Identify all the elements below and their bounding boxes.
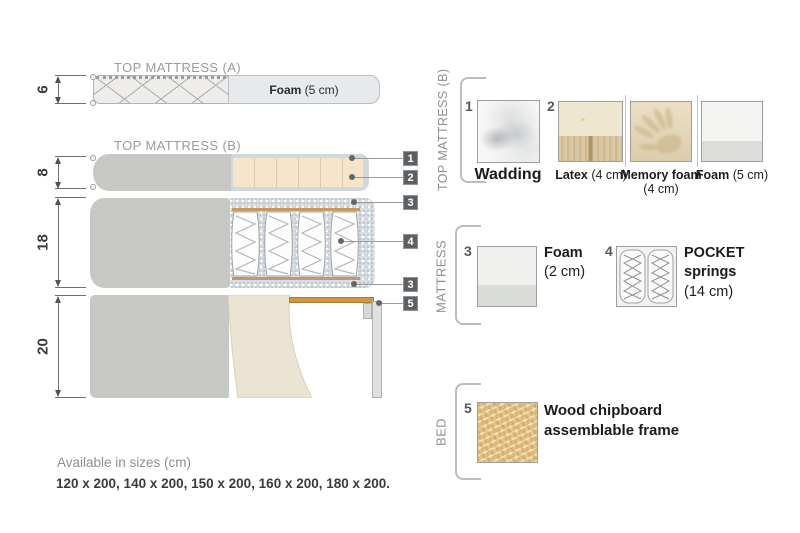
dim-18-value: 18	[35, 230, 52, 256]
legend-mattress-title: MATTRESS	[431, 227, 451, 326]
bed-wood-slat	[289, 297, 374, 303]
top-mattress-b-title: TOP MATTRESS (B)	[114, 138, 241, 153]
callout-5-dot	[376, 300, 382, 306]
callout-3b-dot	[351, 281, 357, 287]
pocket-springs-image	[616, 246, 677, 307]
foam-5cm-image	[701, 101, 763, 162]
foam-a-size: (5 cm)	[301, 83, 338, 97]
callout-2-line	[352, 177, 404, 178]
legend-item-4-number: 4	[605, 243, 613, 259]
fabric-drape-graphic	[228, 295, 312, 398]
wadding-caption: Wadding	[462, 166, 554, 184]
latex-image	[558, 101, 623, 162]
pocket-springs-legend-graphic	[617, 247, 676, 306]
legend-item-3-number: 3	[464, 243, 472, 259]
pocket-springs-caption: POCKET springs(14 cm)	[684, 244, 758, 302]
legend-bed-title: BED	[431, 385, 451, 479]
wadding-image	[477, 100, 540, 163]
available-sizes-list: 120 x 200, 140 x 200, 150 x 200, 160 x 2…	[56, 476, 390, 491]
top-mattress-a-quilted-cover	[93, 75, 228, 104]
legend-item-2-number: 2	[547, 98, 555, 114]
memory-foam-image	[630, 101, 692, 162]
callout-3-dot	[351, 199, 357, 205]
top-mattress-a-title: TOP MATTRESS (A)	[114, 60, 241, 75]
button-tuft-icon	[90, 184, 96, 190]
callout-4-badge: 4	[403, 234, 418, 249]
dim-8-arrow-down	[55, 182, 61, 189]
dim-18-tick-bottom	[55, 287, 86, 288]
bed-frame-leg	[372, 301, 382, 398]
callout-4-dot	[338, 238, 344, 244]
bed-frame-bracket	[363, 303, 372, 319]
dim-18-arrow-up	[55, 198, 61, 205]
bed-upholstered-base	[90, 295, 229, 398]
mattress-fabric-cover	[90, 198, 230, 288]
legend-item-1-number: 1	[465, 98, 473, 114]
callout-1-line	[352, 158, 404, 159]
dim-20-arrow-up	[55, 296, 61, 303]
foam-a-label: Foam	[269, 83, 301, 97]
legend-divider	[697, 95, 698, 167]
legend-top-mattress-b-title: TOP MATTRESS (B)	[433, 72, 453, 188]
dim-20-value: 20	[35, 334, 52, 360]
legend-divider	[625, 95, 626, 167]
callout-5-line	[379, 303, 404, 304]
top-mattress-a-foam-layer: Foam (5 cm)	[228, 75, 380, 104]
top-mattress-b-latex-segments	[233, 158, 363, 187]
dim-20-line	[58, 298, 59, 394]
dim-18-line	[58, 200, 59, 284]
callout-5-badge: 5	[403, 296, 418, 311]
foam-2cm-image	[477, 246, 537, 307]
button-tuft-icon	[90, 100, 96, 106]
callout-1-dot	[349, 155, 355, 161]
chipboard-caption: Wood chipboard assemblable frame	[544, 401, 716, 441]
dim-20-tick-bottom	[55, 397, 86, 398]
dim-6-arrow-up	[55, 76, 61, 83]
hand-imprint-graphic	[631, 102, 691, 161]
callout-3b-badge: 3	[403, 277, 418, 292]
foam-5cm-caption: Foam (5 cm)	[690, 168, 774, 182]
callout-1-badge: 1	[403, 151, 418, 166]
button-tuft-icon	[90, 74, 96, 80]
callout-3b-line	[354, 284, 404, 285]
legend-item-5-number: 5	[464, 400, 472, 416]
available-sizes-title: Available in sizes (cm)	[57, 455, 191, 470]
dim-18-arrow-down	[55, 280, 61, 287]
dim-8-value: 8	[35, 160, 52, 186]
top-mattress-b-wadding-layer	[231, 154, 369, 191]
chipboard-image	[477, 402, 538, 463]
callout-2-badge: 2	[403, 170, 418, 185]
dim-20-arrow-down	[55, 390, 61, 397]
button-tuft-icon	[90, 155, 96, 161]
pocket-springs-graphic	[231, 211, 359, 277]
mattress-foam-edge-bottom	[232, 277, 360, 280]
callout-3-badge: 3	[403, 195, 418, 210]
callout-3-line	[354, 202, 404, 203]
dim-6-arrow-down	[55, 97, 61, 104]
callout-2-dot	[349, 174, 355, 180]
top-mattress-b-fabric-cover	[93, 154, 233, 191]
dim-6-value: 6	[35, 77, 52, 103]
bed-construction-infographic: 6 8 18 20 TOP MATTRESS (A) Foam (5 cm) T…	[0, 0, 800, 533]
foam-2cm-caption: Foam(2 cm)	[544, 244, 602, 283]
dim-8-arrow-up	[55, 157, 61, 164]
callout-4-line	[341, 241, 404, 242]
